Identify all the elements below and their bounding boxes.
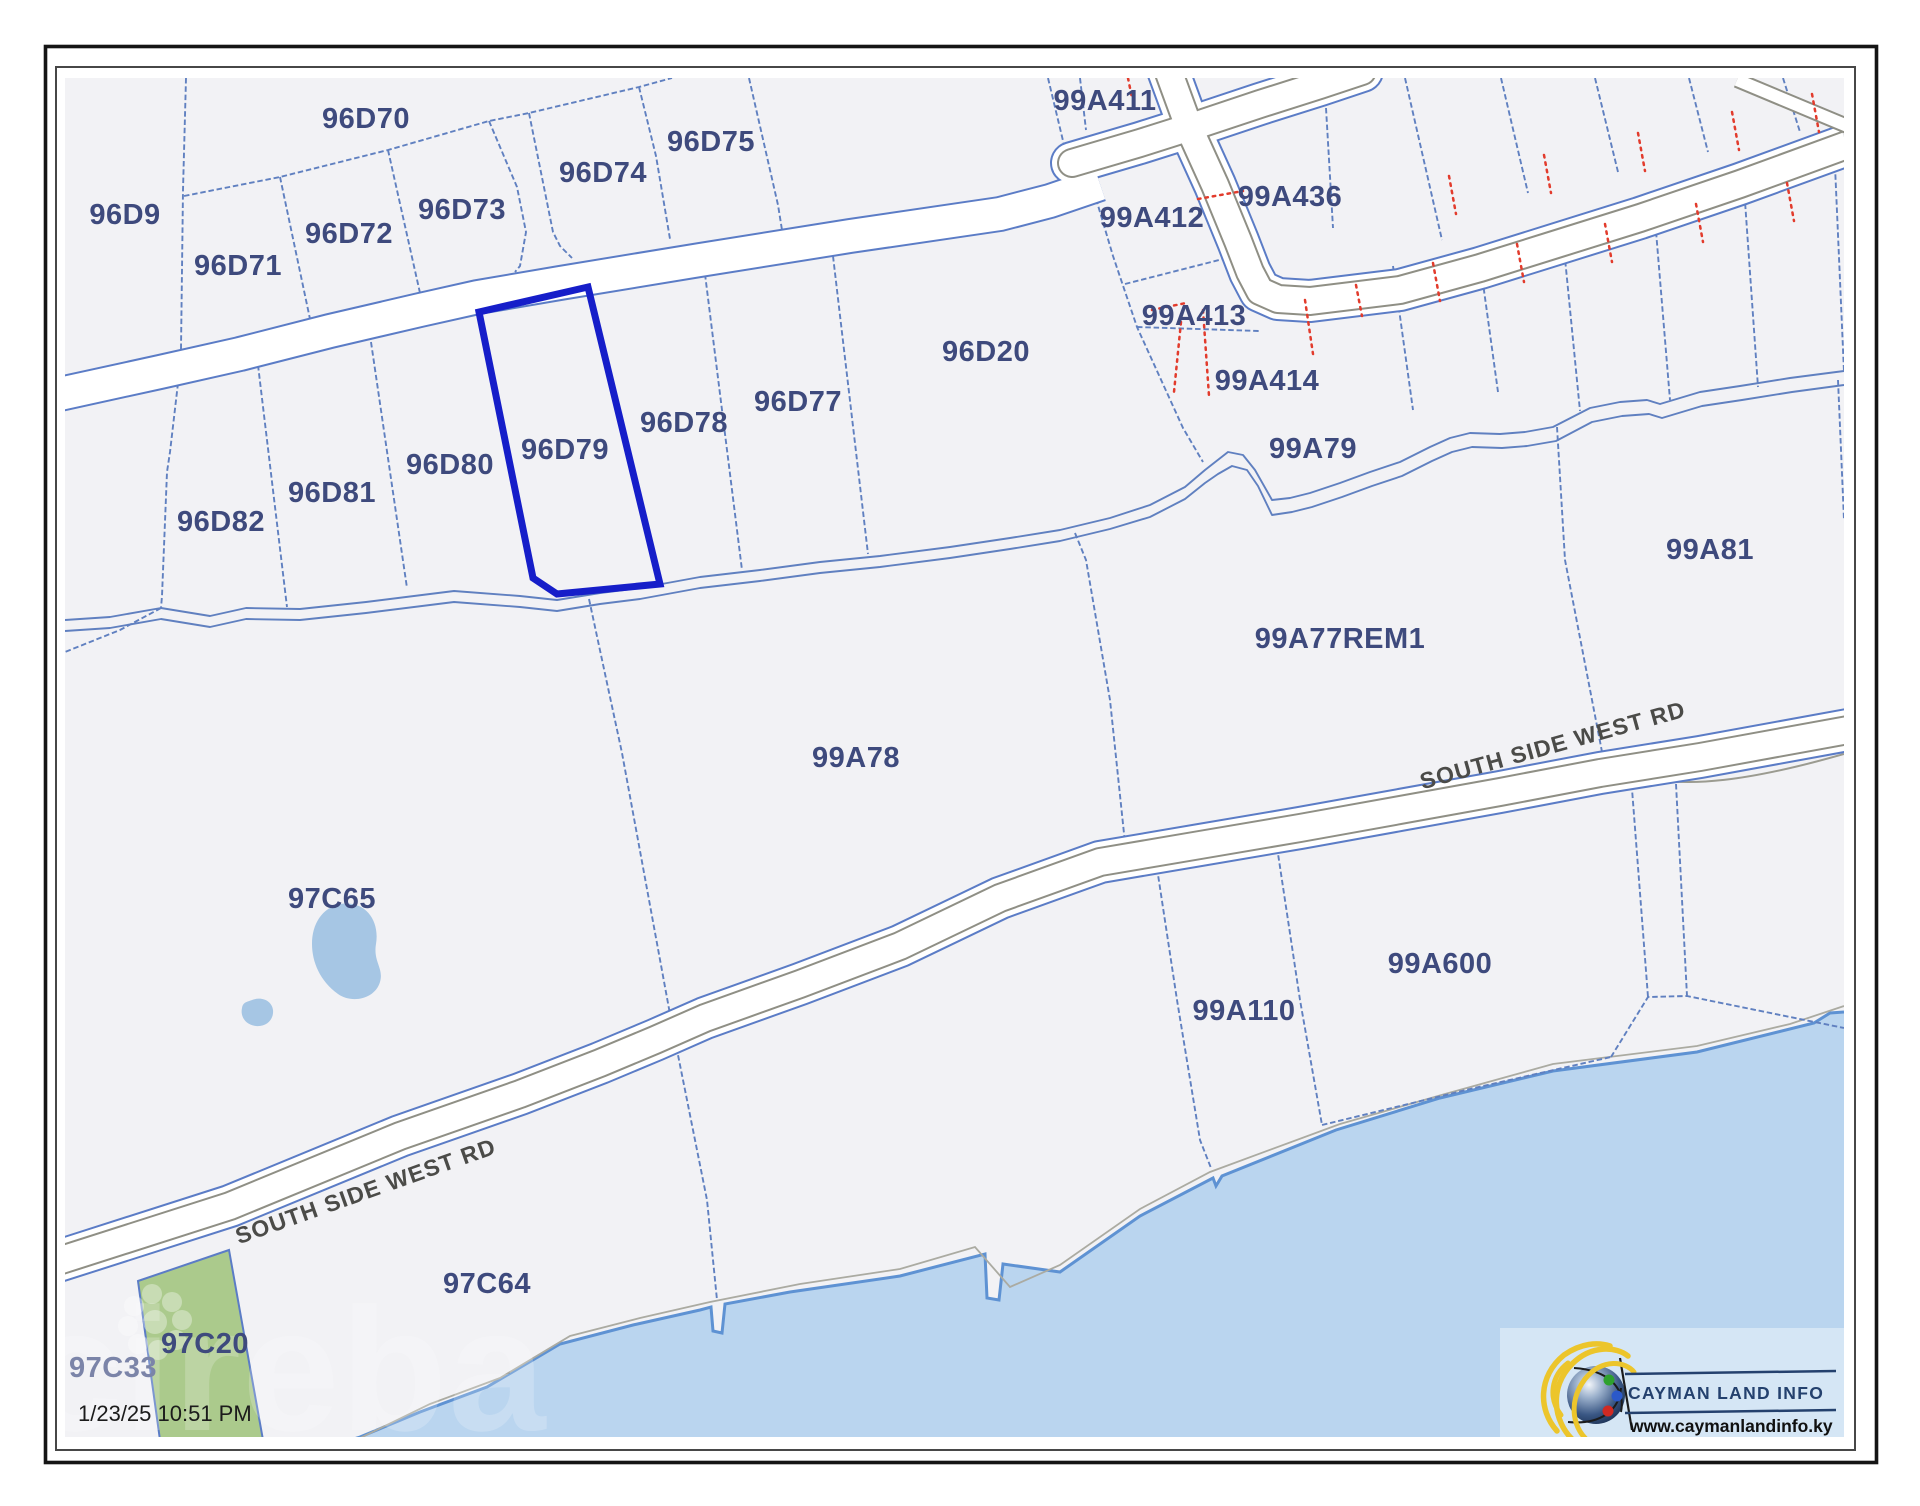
svg-text:96D9: 96D9	[89, 199, 160, 231]
svg-text:99A79: 99A79	[1269, 433, 1357, 465]
svg-text:CAYMAN LAND INFO: CAYMAN LAND INFO	[1628, 1383, 1824, 1403]
svg-text:97C64: 97C64	[443, 1268, 531, 1300]
svg-text:99A412: 99A412	[1100, 202, 1205, 234]
svg-text:96D71: 96D71	[194, 250, 282, 282]
svg-text:96D20: 96D20	[942, 336, 1030, 368]
svg-text:96D75: 96D75	[667, 126, 755, 158]
svg-text:99A81: 99A81	[1666, 534, 1754, 566]
svg-text:99A600: 99A600	[1388, 948, 1493, 980]
svg-text:99A413: 99A413	[1142, 300, 1247, 332]
svg-text:97C20: 97C20	[161, 1328, 249, 1360]
svg-text:99A77REM1: 99A77REM1	[1255, 623, 1426, 655]
svg-text:96D73: 96D73	[418, 194, 506, 226]
svg-text:96D81: 96D81	[288, 477, 376, 509]
svg-text:www.caymanlandinfo.ky: www.caymanlandinfo.ky	[1629, 1416, 1833, 1436]
svg-text:96D82: 96D82	[177, 506, 265, 538]
svg-text:99A110: 99A110	[1193, 995, 1296, 1027]
svg-text:99A436: 99A436	[1238, 181, 1343, 213]
svg-text:1/23/25 10:51 PM: 1/23/25 10:51 PM	[78, 1401, 252, 1426]
svg-text:96D78: 96D78	[640, 407, 728, 439]
svg-text:99A414: 99A414	[1215, 365, 1320, 397]
svg-text:96D74: 96D74	[559, 157, 647, 189]
svg-text:96D70: 96D70	[322, 103, 410, 135]
svg-text:96D77: 96D77	[754, 386, 842, 418]
svg-text:99A411: 99A411	[1054, 85, 1157, 117]
svg-text:96D72: 96D72	[305, 218, 393, 250]
svg-text:97C65: 97C65	[288, 883, 376, 915]
svg-text:97C33: 97C33	[69, 1352, 157, 1384]
svg-text:99A78: 99A78	[812, 742, 900, 774]
svg-text:96D79: 96D79	[521, 434, 609, 466]
svg-text:96D80: 96D80	[406, 449, 494, 481]
